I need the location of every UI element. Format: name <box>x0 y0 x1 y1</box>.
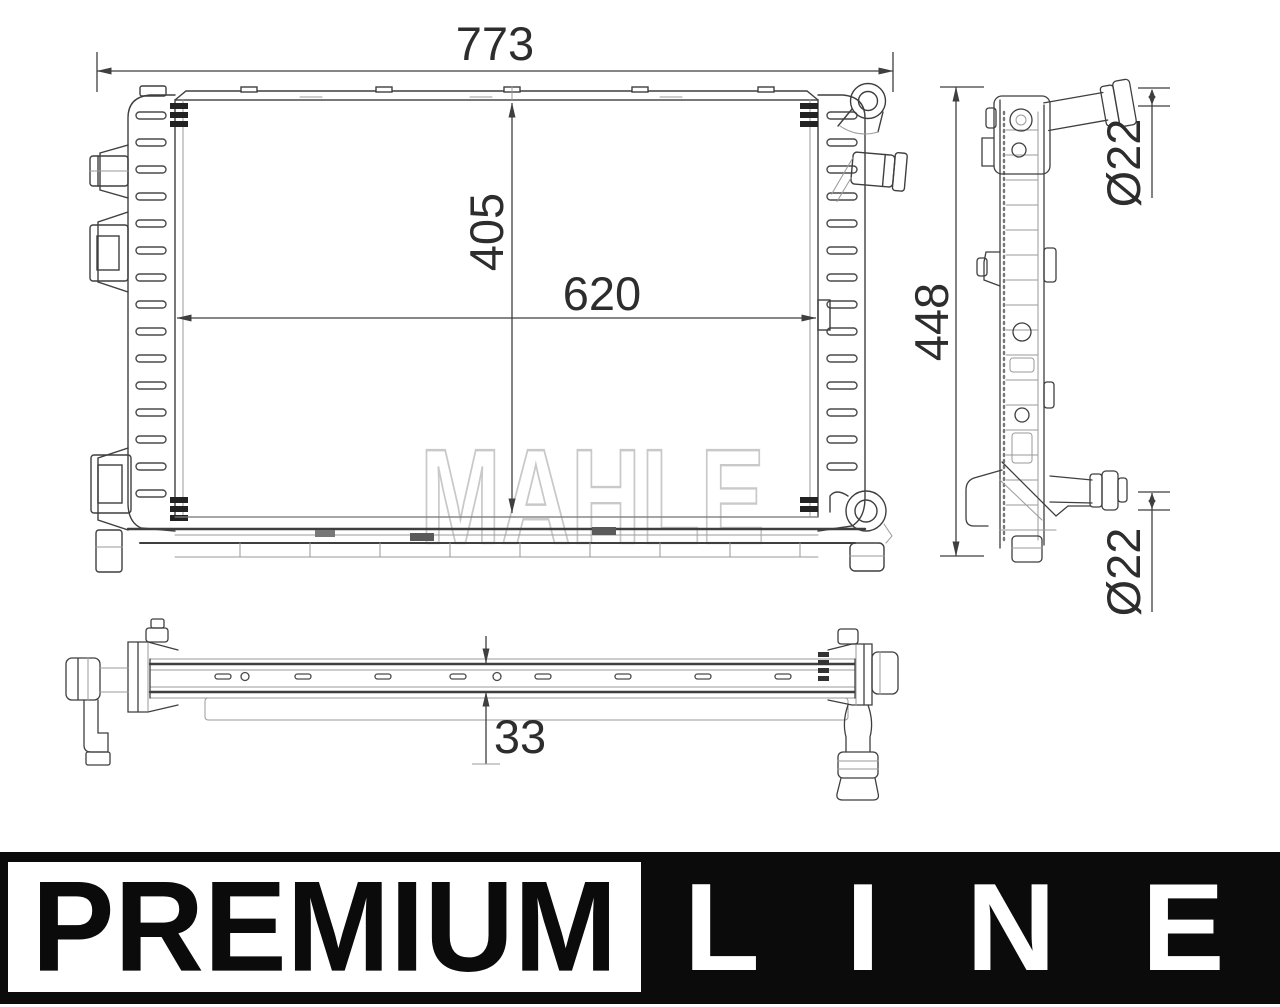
premium-label-box: PREMIUM <box>8 862 641 992</box>
radiator-technical-drawing-page: MAHLE <box>0 0 1280 1007</box>
dimension-773: 773 <box>97 17 893 92</box>
dimension-620-label: 620 <box>563 267 641 320</box>
dimension-448-label: 448 <box>905 283 958 361</box>
inlet-pipe <box>831 147 907 207</box>
side-view-body <box>977 96 1056 548</box>
dimension-d22-bottom: Ø22 <box>1097 492 1170 616</box>
left-tank-ribs <box>136 112 166 497</box>
line-label: LINE <box>684 857 1280 999</box>
left-tank <box>128 86 175 531</box>
right-tank <box>818 95 865 531</box>
right-tab <box>818 300 830 330</box>
dimension-448: 448 <box>905 87 984 556</box>
bottom-view-dimensions: 33 <box>472 636 546 764</box>
premium-line-banner: PREMIUM LINE <box>0 852 1280 1004</box>
left-bracket-middle <box>90 212 128 292</box>
line-label-box: LINE <box>684 852 1280 1004</box>
mahle-watermark: MAHLE <box>420 421 765 572</box>
filler-cap <box>838 84 886 135</box>
dimension-33-label: 33 <box>494 710 546 763</box>
left-bracket-upper <box>90 145 128 198</box>
dimension-620: 620 <box>177 267 816 320</box>
dimension-33: 33 <box>472 636 546 764</box>
left-bracket-lower <box>91 448 131 572</box>
dimension-773-label: 773 <box>456 17 534 70</box>
bottom-bar-slots <box>215 673 791 681</box>
bottom-view <box>66 619 898 800</box>
drain-boss <box>830 491 892 571</box>
bottom-right-fitting <box>818 629 898 800</box>
bottom-right-combs <box>818 652 829 681</box>
dimension-d22-bottom-label: Ø22 <box>1097 528 1150 617</box>
dimension-405-label: 405 <box>460 193 513 271</box>
dimension-d22-top-label: Ø22 <box>1097 119 1150 208</box>
premium-label: PREMIUM <box>32 853 618 1001</box>
